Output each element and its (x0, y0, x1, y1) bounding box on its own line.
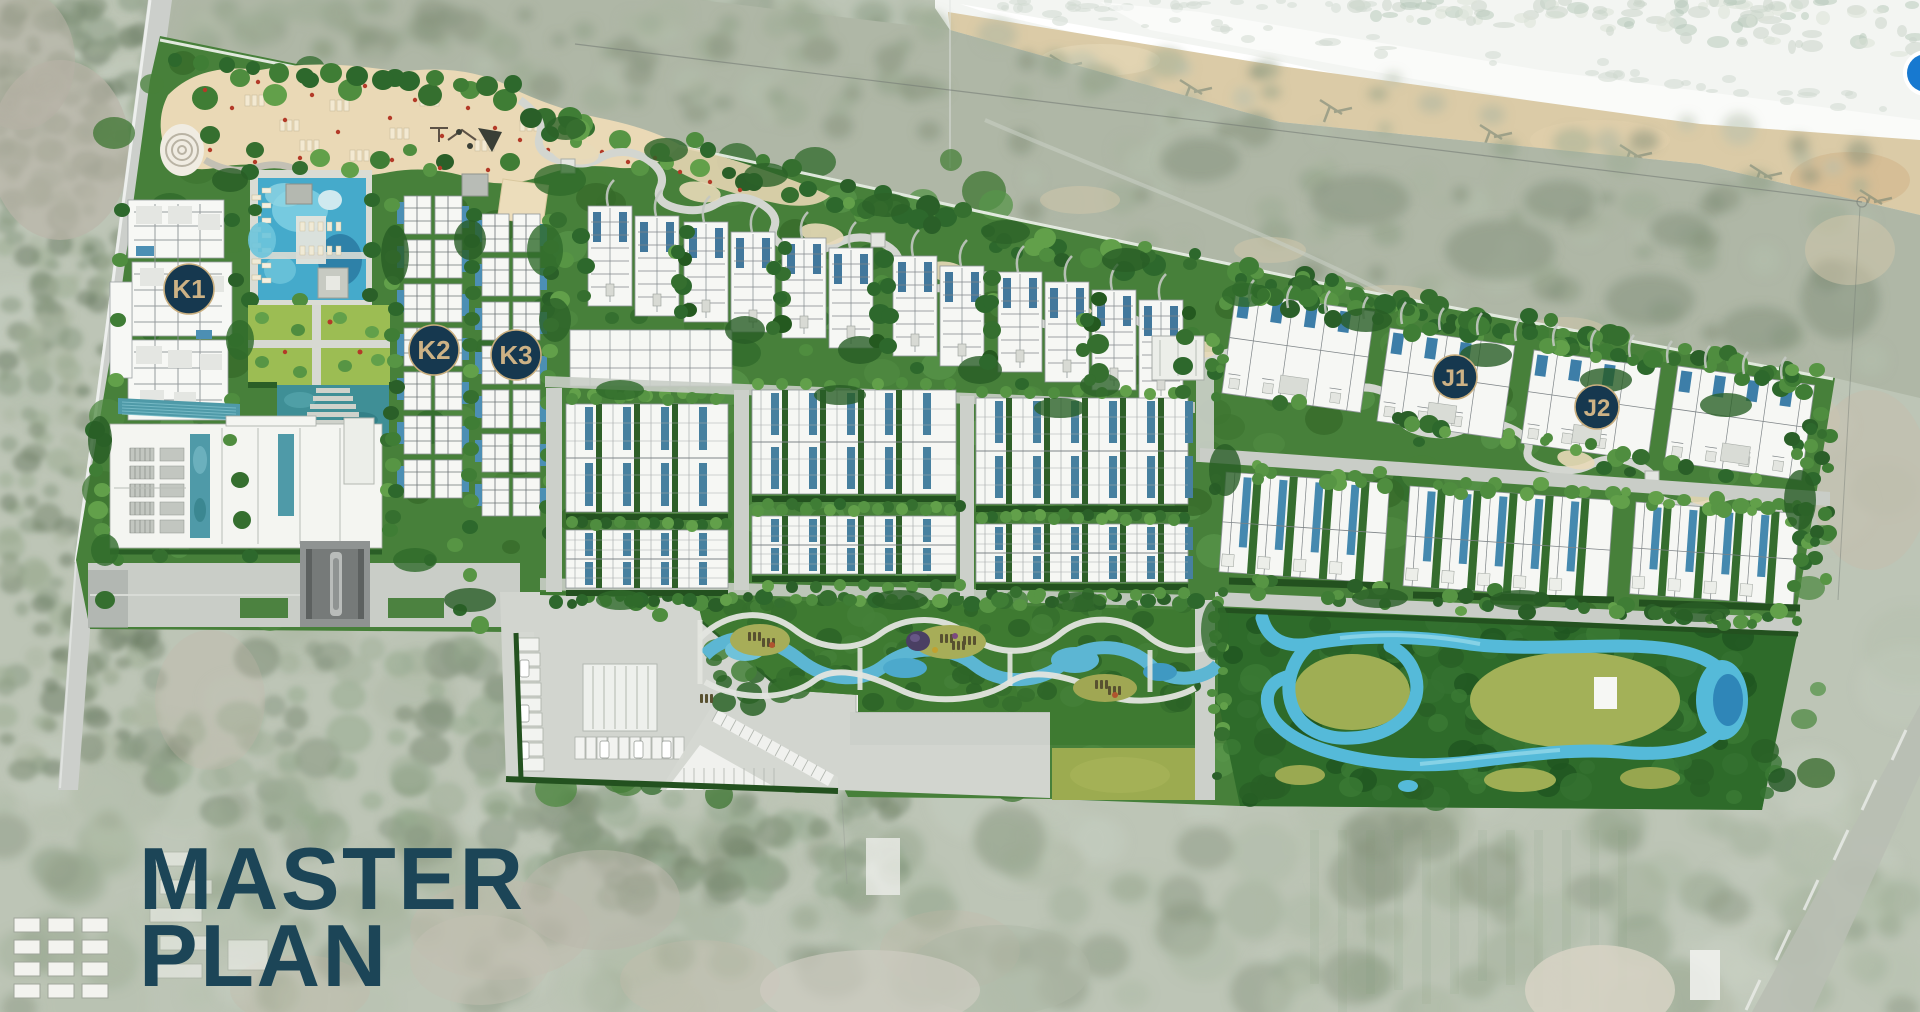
svg-text:K2: K2 (417, 335, 450, 365)
svg-text:PLAN: PLAN (139, 906, 389, 1005)
svg-text:K1: K1 (172, 274, 205, 304)
svg-text:J2: J2 (1584, 395, 1611, 422)
svg-text:J1: J1 (1442, 365, 1469, 392)
svg-text:K3: K3 (499, 340, 532, 370)
